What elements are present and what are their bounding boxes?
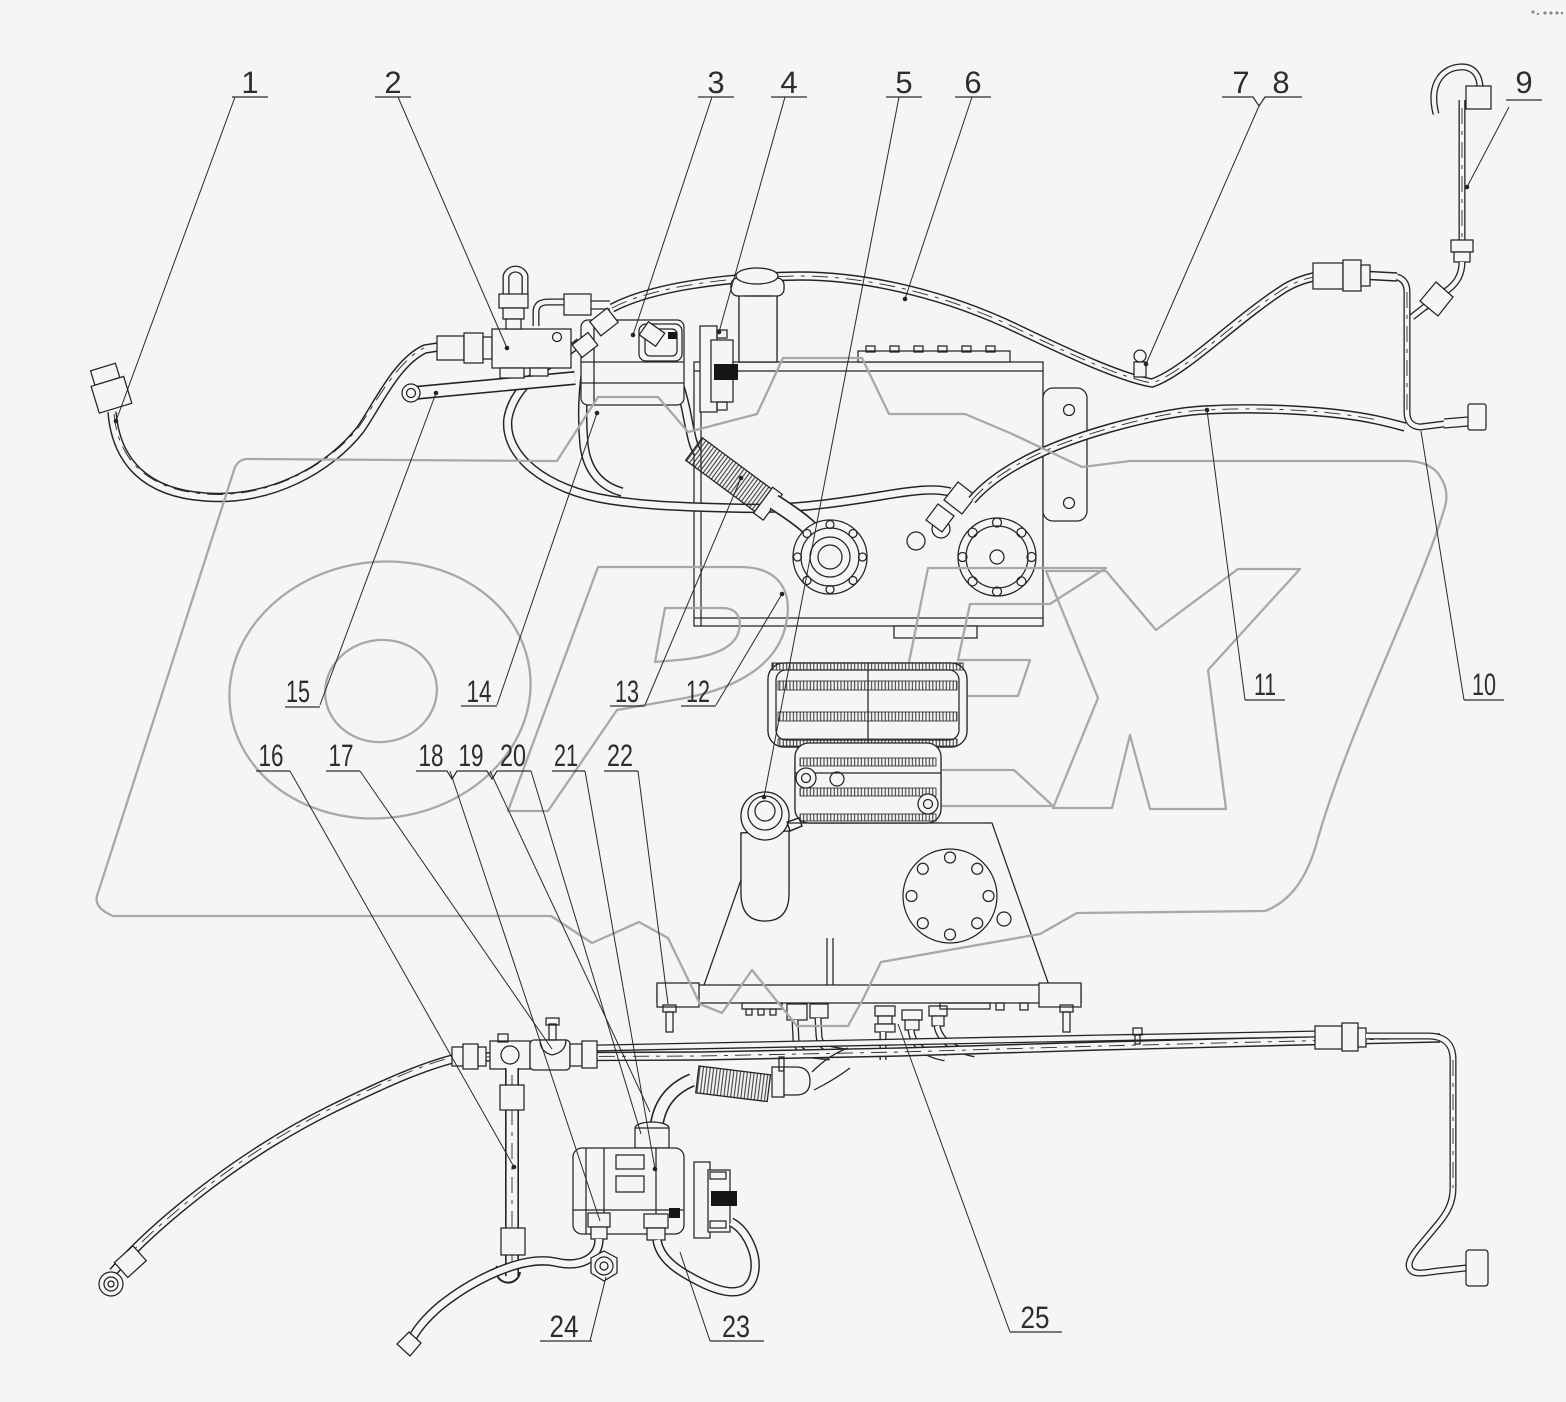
svg-text:24: 24: [550, 1309, 579, 1344]
svg-text:13: 13: [615, 674, 639, 709]
svg-text:4: 4: [780, 65, 797, 100]
svg-text:25: 25: [1021, 1300, 1050, 1335]
svg-text:5: 5: [895, 65, 912, 100]
svg-text:3: 3: [707, 65, 724, 100]
svg-text:10: 10: [1472, 667, 1496, 702]
svg-text:1: 1: [241, 65, 258, 100]
svg-text:21: 21: [554, 738, 578, 773]
svg-text:16: 16: [259, 738, 284, 773]
svg-text:12: 12: [686, 674, 710, 709]
svg-text:9: 9: [1515, 65, 1532, 100]
svg-text:19: 19: [459, 738, 484, 773]
svg-text:8: 8: [1272, 65, 1289, 100]
svg-text:17: 17: [329, 738, 354, 773]
svg-text:23: 23: [722, 1309, 750, 1344]
svg-text:15: 15: [286, 674, 310, 709]
svg-text:20: 20: [500, 738, 526, 773]
svg-text:22: 22: [607, 738, 633, 773]
svg-text:18: 18: [419, 738, 444, 773]
svg-text:6: 6: [964, 65, 981, 100]
svg-text:11: 11: [1254, 667, 1276, 702]
svg-text:14: 14: [467, 674, 492, 709]
svg-text:2: 2: [384, 65, 401, 100]
svg-text:7: 7: [1232, 65, 1249, 100]
